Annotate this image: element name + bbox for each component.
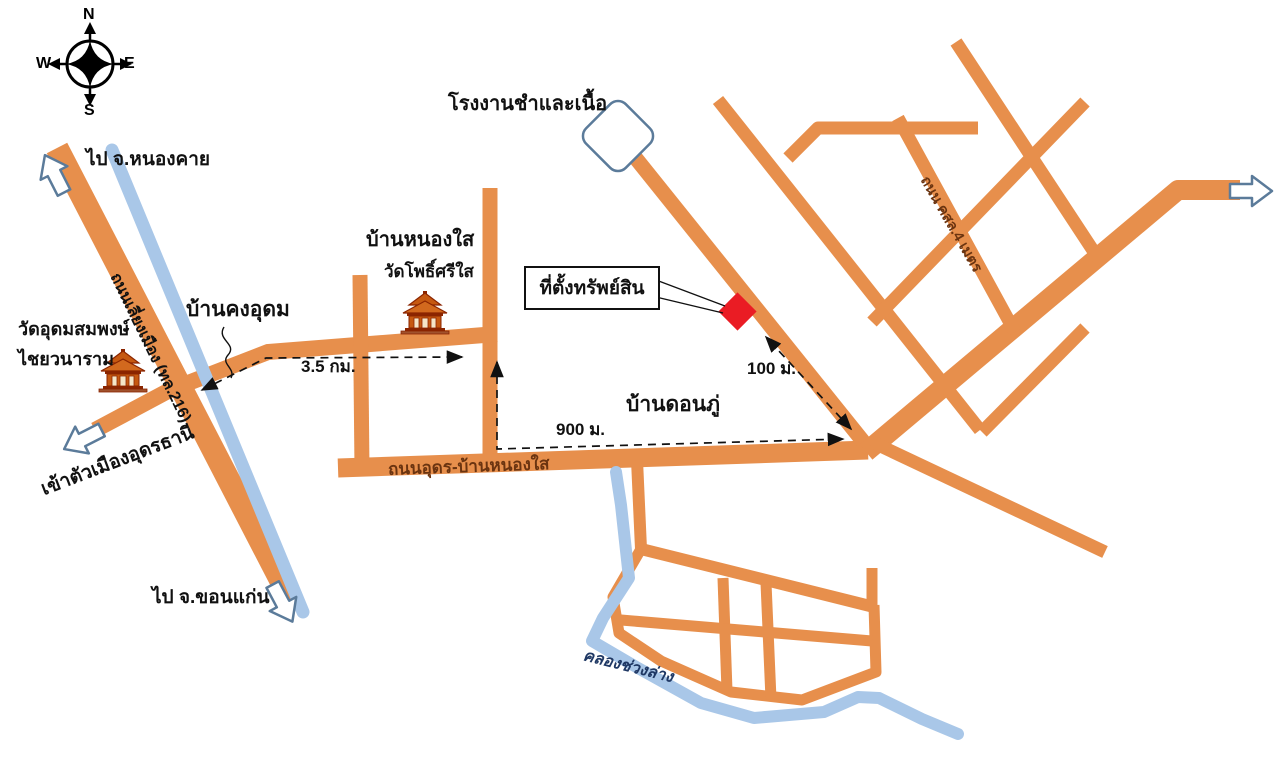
southeast-branch-road [872, 442, 1105, 552]
label-distance-900m: 900 ม. [556, 421, 605, 440]
label-wat-pho-si-sai: วัดโพธิ์ศรีใส [384, 263, 474, 282]
route-100m-dashed [766, 337, 851, 429]
label-ban-don-phu: บ้านดอนภู่ [626, 393, 720, 416]
label-wat-udom-line2: ไชยวนาราม [18, 350, 114, 370]
compass-e: E [124, 55, 135, 73]
grid-road-q3 [956, 42, 1098, 258]
subdivision-access-road [637, 460, 641, 549]
label-wat-udom-line1: วัดอุดมสมพงษ์ [18, 320, 130, 340]
location-map: N E S W ไป จ.หนองคาย โรงงานชำและเนื้อ บ้… [0, 0, 1280, 765]
grid-road-p2 [788, 128, 978, 158]
map-canvas [0, 0, 1280, 765]
label-ban-nong-sai: บ้านหนองใส [366, 229, 474, 251]
subdivision-top-road [641, 549, 874, 607]
bypass-216-road [57, 148, 295, 608]
compass-n: N [83, 6, 95, 24]
compass-rose-icon [48, 22, 132, 106]
label-distance-100m: 100 ม. [747, 360, 796, 379]
village-road-v1 [360, 275, 362, 470]
canal-along-bypass [112, 150, 303, 612]
label-to-nongkhai: ไป จ.หนองคาย [86, 150, 210, 171]
wat-pho-si-sai-temple-icon [401, 291, 449, 334]
label-distance-3-5km: 3.5 กม. [301, 358, 356, 377]
subdivision-road-i3 [621, 620, 872, 641]
compass-s: S [84, 102, 95, 120]
label-factory: โรงงานชำและเนื้อ [448, 93, 607, 115]
label-property: ที่ตั้งทรัพย์สิน [539, 273, 644, 303]
property-callout-lines [656, 280, 725, 313]
subdivision-road-i2 [766, 583, 771, 699]
grid-road-q1 [718, 100, 980, 430]
property-label-box: ที่ตั้งทรัพย์สิน [524, 266, 660, 310]
label-ban-khong-udom: บ้านคงอุดม [186, 298, 290, 321]
label-to-khonkaen: ไป จ.ขอนแก่น [152, 588, 269, 609]
main-artery-road [866, 190, 1240, 452]
compass-w: W [36, 55, 51, 73]
subdivision-road-i1 [723, 578, 727, 691]
